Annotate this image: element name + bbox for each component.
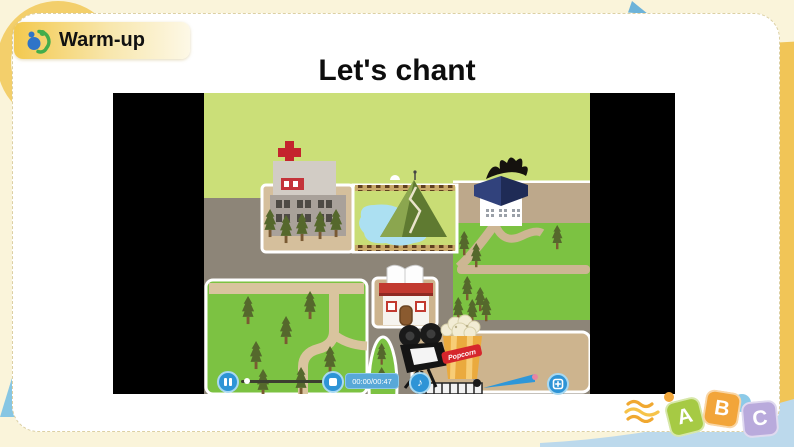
block-letter: B xyxy=(713,396,732,422)
video-player[interactable]: Popcorn 00:00/00:47 ♪ xyxy=(113,93,675,394)
fullscreen-icon xyxy=(552,378,564,390)
waves-icon xyxy=(624,399,666,423)
popcorn-bucket-icon: Popcorn xyxy=(441,315,483,379)
people-logo-icon xyxy=(25,28,51,54)
letter-block-b: B xyxy=(701,388,742,429)
sound-button[interactable]: ♪ xyxy=(409,372,431,394)
town-map-scene: Popcorn xyxy=(204,93,590,394)
letter-block-c: C xyxy=(740,399,779,438)
progress-handle[interactable] xyxy=(244,378,250,384)
stop-icon xyxy=(329,378,337,386)
slide: Let's chant Warm-up xyxy=(0,0,794,447)
pause-icon xyxy=(224,378,227,386)
right-green-field xyxy=(453,223,590,323)
gold-wedge-decoration xyxy=(778,42,794,415)
progress-bar[interactable] xyxy=(241,380,323,383)
badge-label: Warm-up xyxy=(59,29,145,52)
music-note-icon: ♪ xyxy=(417,378,423,389)
block-letter: A xyxy=(675,404,696,431)
pause-button[interactable] xyxy=(217,371,239,393)
fullscreen-button[interactable] xyxy=(547,373,569,395)
time-display: 00:00/00:47 xyxy=(345,373,399,389)
slide-title: Let's chant xyxy=(13,54,781,88)
stop-button[interactable] xyxy=(322,371,344,393)
warm-up-badge: Warm-up xyxy=(14,22,190,59)
block-letter: C xyxy=(751,406,768,431)
